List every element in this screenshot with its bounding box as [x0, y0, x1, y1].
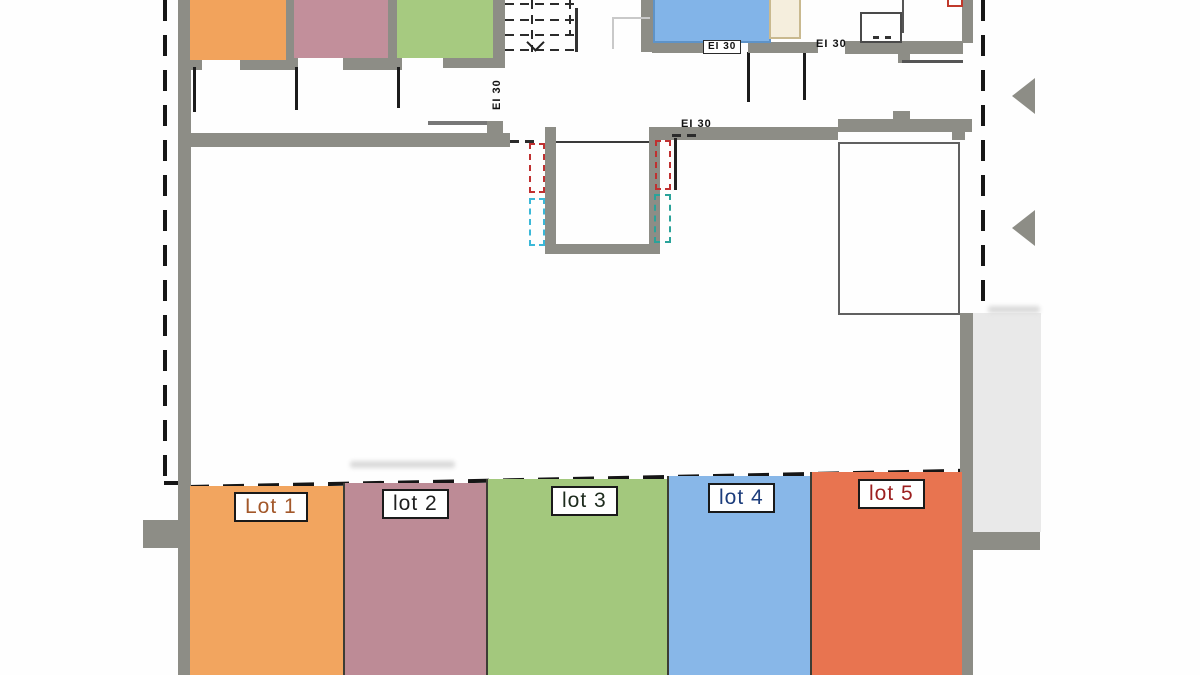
door-leaf-2 — [295, 67, 298, 110]
room-green — [397, 0, 493, 58]
scan-smudge-1 — [350, 461, 455, 468]
wall-main-left — [188, 133, 510, 147]
direction-arrow-icon-2 — [1012, 210, 1035, 246]
wall-topright-threshold — [902, 60, 963, 63]
stairwell-wall-left — [545, 127, 556, 253]
lot-5-label: lot 5 — [858, 479, 925, 509]
wall-top-right-corner — [962, 0, 973, 43]
door-leaf-5 — [803, 50, 806, 100]
fire-rating-label-right: EI 30 — [816, 38, 847, 50]
scan-smudge-2 — [988, 306, 1040, 313]
stair-edge-line — [575, 8, 578, 52]
fixture-beige-closet — [769, 0, 801, 39]
elevator-box — [860, 12, 902, 43]
wall-room-divider-2 — [388, 0, 397, 58]
paved-area — [973, 313, 1041, 532]
shaft-red-left — [529, 143, 545, 193]
wall-left-stub — [143, 520, 179, 548]
partition-line — [902, 0, 904, 33]
wall-corridor-seg-3 — [343, 58, 402, 70]
lot-2-label: lot 2 — [382, 489, 449, 519]
boundary-dash-left — [163, 0, 167, 481]
shaft-divider-line — [674, 138, 677, 190]
wall-corridor-seg-4 — [443, 58, 493, 68]
fire-rating-label-mid: EI 30 — [681, 118, 712, 130]
wall-room-divider-1 — [286, 0, 294, 60]
shaft-teal-right — [654, 194, 671, 243]
paved-area-curb — [968, 532, 1040, 550]
floor-plan: EI 30 EI 30 EI 30 EI 30 Lot 1 lot 2 lot … — [0, 0, 1200, 675]
elevator-door-mark-2 — [885, 36, 891, 39]
wall-main-step — [487, 121, 503, 134]
wall-main-right-mark — [952, 131, 965, 140]
stair-tread-1 — [505, 3, 577, 5]
faint-ledge-v — [612, 17, 614, 49]
wall-main-right-bump — [893, 111, 910, 120]
stair-stringer-dash-2 — [569, 0, 571, 36]
door-leaf-3 — [397, 67, 400, 108]
shaft-red-right — [655, 140, 671, 190]
lot-4-label: lot 4 — [708, 483, 775, 513]
room-orange — [190, 0, 286, 60]
zone-outline — [838, 142, 960, 315]
fire-rating-label-boxed: EI 30 — [703, 40, 741, 54]
wall-green-room-right — [493, 0, 505, 68]
room-mauve — [294, 0, 388, 58]
door-leaf-4 — [747, 52, 750, 102]
opening-dash-right — [672, 134, 698, 137]
lot-3-label: lot 3 — [551, 486, 618, 516]
red-pen-mark — [947, 0, 963, 7]
door-leaf-1 — [193, 67, 196, 112]
shaft-cyan-left — [529, 198, 545, 246]
stair-tread-2 — [505, 19, 577, 21]
elevator-door-mark-1 — [873, 36, 879, 39]
faint-ledge-h — [612, 17, 650, 19]
stairwell-wall-bottom — [545, 244, 660, 254]
wall-main-lowledge — [428, 121, 487, 125]
room-blue — [653, 0, 771, 43]
stair-tread-3 — [505, 34, 577, 36]
wall-topright-seg-2 — [748, 42, 818, 53]
fire-rating-label-vertical: EI 30 — [491, 80, 503, 110]
stairwell-opening-line — [556, 141, 649, 143]
stair-tread-4 — [505, 49, 577, 51]
direction-arrow-icon-1 — [1012, 78, 1035, 114]
lot-1-label: Lot 1 — [234, 492, 308, 522]
